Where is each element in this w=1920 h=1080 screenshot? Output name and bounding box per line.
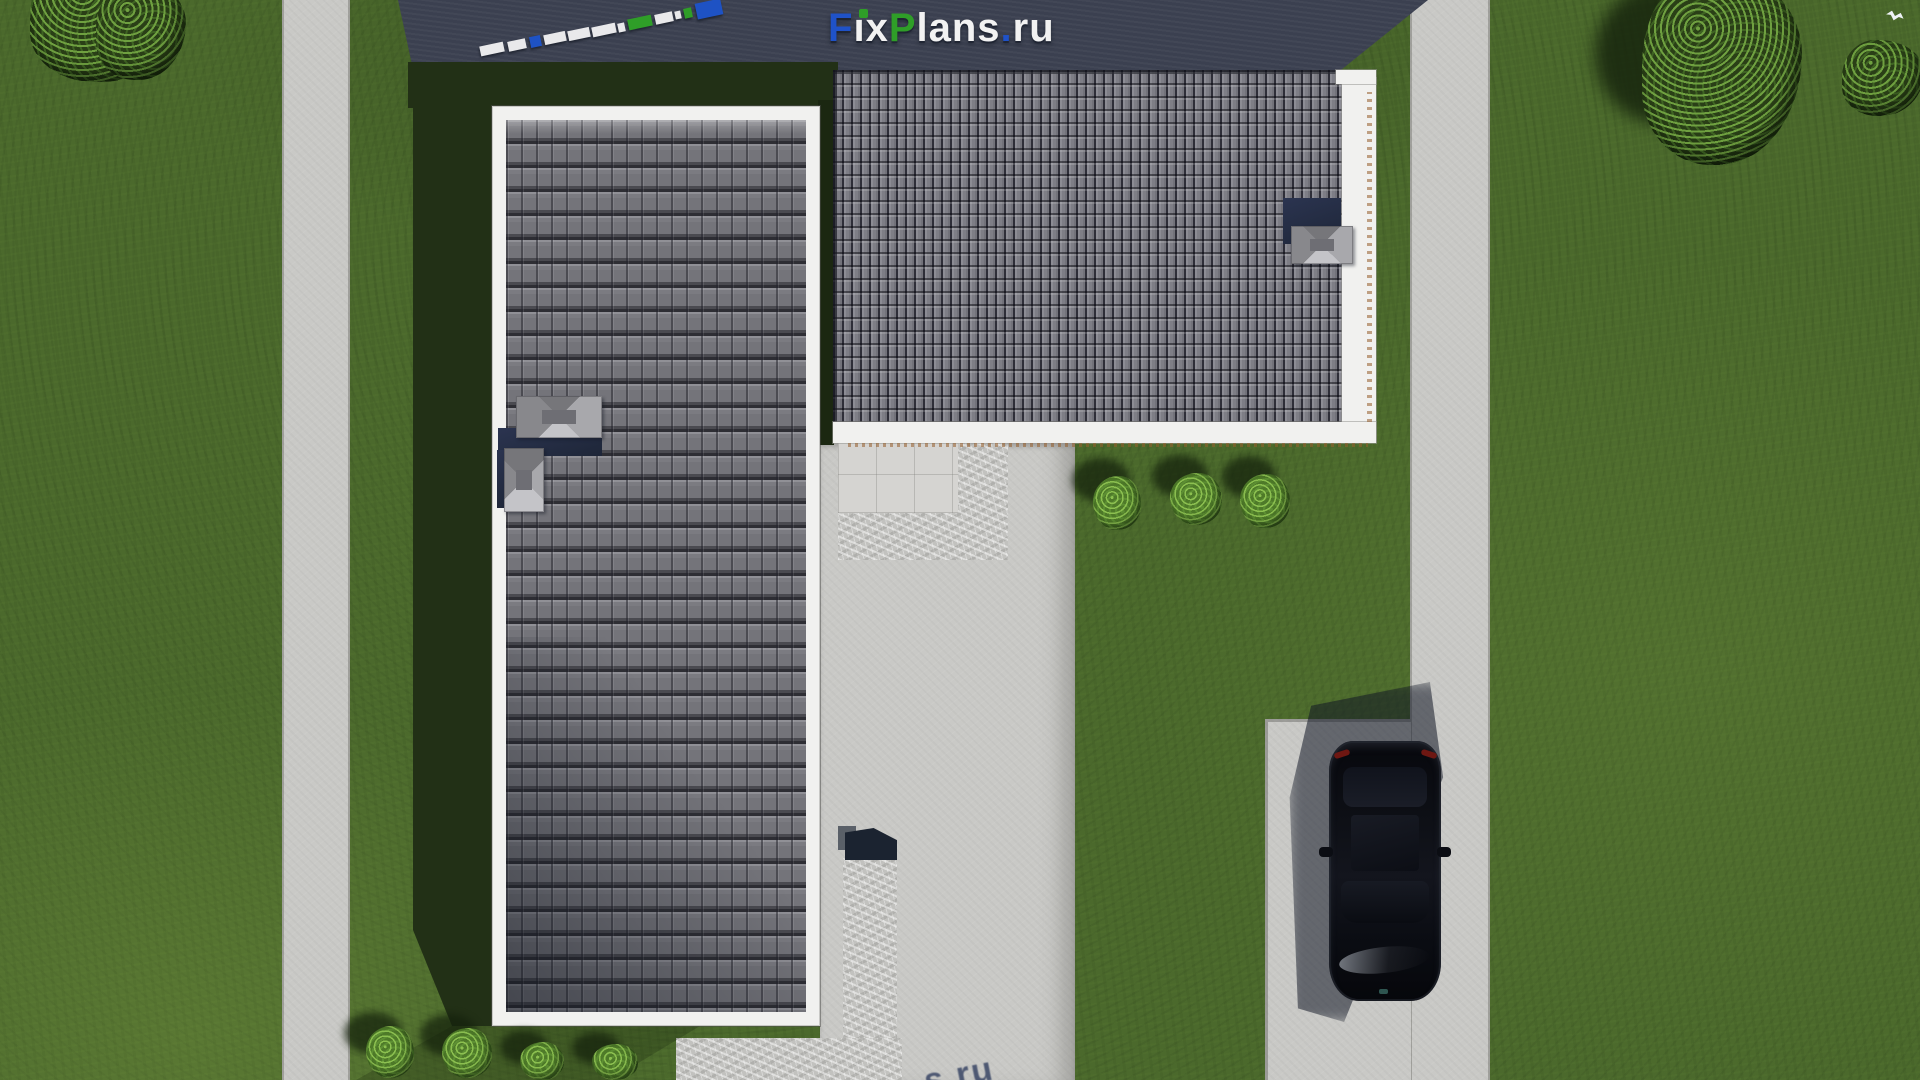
black-car	[1329, 741, 1441, 1001]
logo-3d-blocks	[478, 0, 718, 60]
shadow-gap-between-wings	[818, 100, 834, 445]
logo-letter-x: x	[866, 6, 889, 50]
patio-smooth-slab	[838, 443, 958, 513]
flower-strip-south	[848, 443, 1368, 447]
logo-i-dot-green	[859, 9, 868, 18]
car-taillight-left	[1333, 749, 1350, 760]
garden-bush	[366, 1026, 414, 1078]
car-rear-window	[1343, 767, 1427, 807]
right-roof-tiles	[833, 70, 1342, 422]
car-mirror-right	[1437, 847, 1451, 857]
brand-watermark: FıxPlans.ru	[828, 8, 1055, 48]
paver-terrace	[676, 1038, 902, 1080]
garden-bush	[1240, 474, 1290, 528]
right-roof-fascia-bottom	[833, 422, 1376, 443]
tree-top-right	[1642, 0, 1802, 165]
bird-icon	[1885, 8, 1906, 25]
left-roof-tiles	[506, 120, 806, 1012]
garden-bush	[1093, 476, 1141, 530]
garden-bush	[1170, 473, 1222, 525]
car-sunroof	[1351, 815, 1419, 871]
car-hood-reflection	[1338, 942, 1430, 977]
garden-bush	[592, 1044, 638, 1080]
roof-ridge-highlight	[506, 120, 806, 134]
flower-strip-east	[1367, 92, 1372, 422]
logo-letters-lans: lans	[917, 6, 1001, 50]
logo-dot: .	[1001, 6, 1013, 50]
left-footpath	[282, 0, 350, 1080]
tree-right-edge	[1842, 40, 1920, 116]
logo-letters-ru: ru	[1013, 6, 1055, 50]
garden-bush	[520, 1042, 564, 1080]
skylight-box-3	[1291, 226, 1353, 264]
garden-bush	[442, 1028, 492, 1078]
shadow-strip-under-band	[408, 62, 838, 108]
site-plan-render: FıxPlans.ru s.ru	[0, 0, 1920, 1080]
car-front-badge	[1379, 989, 1388, 994]
car-mirror-left	[1319, 847, 1333, 857]
car-windshield	[1341, 881, 1429, 923]
left-roof-fascia	[492, 106, 820, 1026]
logo-letter-p: P	[889, 6, 917, 50]
roof-corner-shading	[506, 637, 806, 1012]
car-taillight-right	[1420, 749, 1437, 760]
logo-letter-f: F	[828, 6, 853, 50]
tree-top-left-lobe	[96, 0, 186, 80]
skylight-box-1	[516, 396, 602, 438]
skylight-box-2	[504, 448, 544, 512]
right-roof-fascia-corner	[1336, 70, 1376, 84]
